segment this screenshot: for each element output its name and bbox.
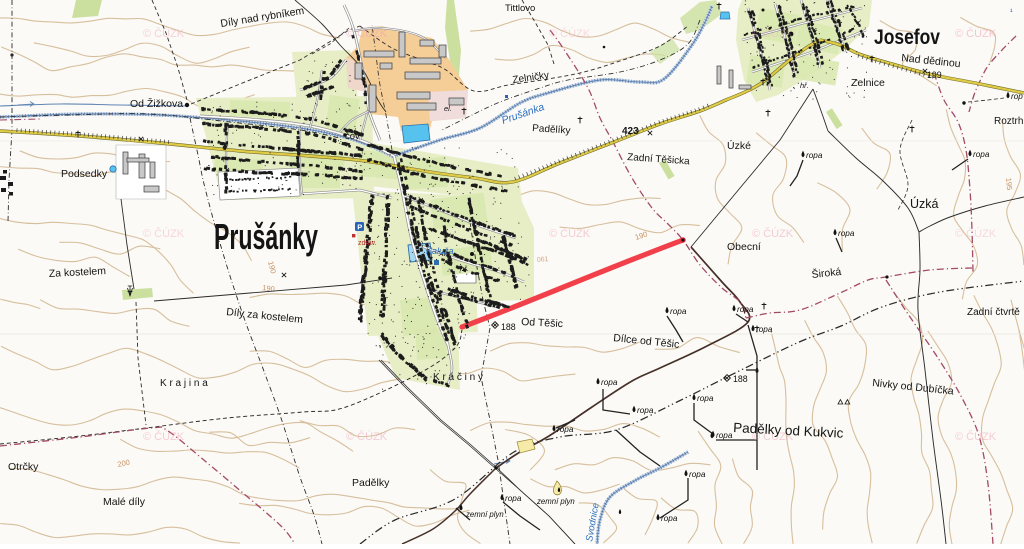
svg-text:rop: rop — [1011, 92, 1023, 101]
svg-text:© ČÚZK: © ČÚZK — [143, 227, 185, 240]
svg-text:K r a j i n a: K r a j i n a — [160, 378, 208, 389]
svg-text:Úzká: Úzká — [910, 196, 939, 211]
svg-text:Roztrh: Roztrh — [994, 116, 1023, 127]
svg-text:ropa: ropa — [838, 229, 855, 238]
svg-text:Od Těšic: Od Těšic — [521, 316, 563, 330]
svg-text:199: 199 — [927, 70, 942, 80]
svg-text:061: 061 — [537, 256, 549, 264]
svg-text:ropa: ropa — [697, 394, 714, 403]
svg-text:P: P — [357, 223, 362, 232]
svg-text:Úzké: Úzké — [727, 139, 751, 152]
svg-text:Zadní čtvrtě: Zadní čtvrtě — [967, 307, 1020, 318]
svg-text:el.: el. — [444, 104, 452, 113]
svg-text:hř.: hř. — [460, 264, 469, 273]
svg-text:ropa: ropa — [756, 325, 773, 334]
svg-text:195: 195 — [1004, 177, 1014, 190]
svg-text:¹: ¹ — [1010, 7, 1013, 16]
svg-text:Podsedky: Podsedky — [61, 168, 108, 180]
svg-text:Malé díly: Malé díly — [103, 496, 146, 508]
svg-text:ropa: ropa — [601, 378, 618, 387]
svg-text:© ČÚZK: © ČÚZK — [955, 430, 997, 443]
svg-text:zemní plyn: zemní plyn — [536, 497, 575, 506]
svg-text:Kaluža: Kaluža — [426, 246, 454, 256]
svg-text:© ČÚZK: © ČÚZK — [752, 27, 794, 40]
svg-text:© ČÚZK: © ČÚZK — [955, 27, 997, 40]
svg-text:K r á č i n y: K r á č i n y — [433, 372, 483, 383]
svg-text:© ČÚZK: © ČÚZK — [752, 227, 794, 240]
svg-text:čov: čov — [345, 131, 360, 142]
svg-text:Tittlovo: Tittlovo — [505, 3, 535, 14]
svg-text:188: 188 — [733, 374, 748, 384]
svg-text:Padělky: Padělky — [352, 477, 390, 489]
svg-text:ropa: ropa — [505, 494, 522, 503]
svg-text:423: 423 — [622, 126, 639, 137]
svg-text:ropa: ropa — [689, 470, 706, 479]
svg-text:Josefov: Josefov — [874, 26, 940, 49]
svg-text:Prušánky: Prušánky — [214, 216, 318, 257]
svg-text:zdrav.: zdrav. — [358, 240, 377, 247]
svg-text:© ČÚZK: © ČÚZK — [955, 227, 997, 240]
svg-text:Obecní: Obecní — [727, 241, 761, 253]
svg-text:© ČÚZK: © ČÚZK — [143, 430, 185, 443]
svg-text:© ČÚZK: © ČÚZK — [549, 227, 591, 240]
svg-text:ropa: ropa — [973, 150, 990, 159]
svg-text:ropa: ropa — [637, 406, 654, 415]
svg-text:ropa: ropa — [716, 431, 733, 440]
svg-text:Otrčky: Otrčky — [8, 461, 39, 473]
svg-text:ropa: ropa — [737, 305, 754, 314]
svg-text:ropa: ropa — [670, 307, 687, 316]
svg-text:© ČÚZK: © ČÚZK — [346, 430, 388, 443]
svg-text:© ČÚZK: © ČÚZK — [143, 27, 185, 40]
svg-text:188: 188 — [501, 322, 516, 332]
svg-text:© ČÚZK: © ČÚZK — [549, 27, 591, 40]
svg-text:Od Žižkova: Od Žižkova — [130, 97, 183, 110]
svg-text:© ČÚZK: © ČÚZK — [346, 27, 388, 40]
svg-text:Zelnice: Zelnice — [851, 77, 885, 89]
svg-text:hř.: hř. — [800, 81, 809, 90]
svg-text:zemní plyn: zemní plyn — [465, 510, 504, 519]
svg-text:ropa: ropa — [806, 151, 823, 160]
